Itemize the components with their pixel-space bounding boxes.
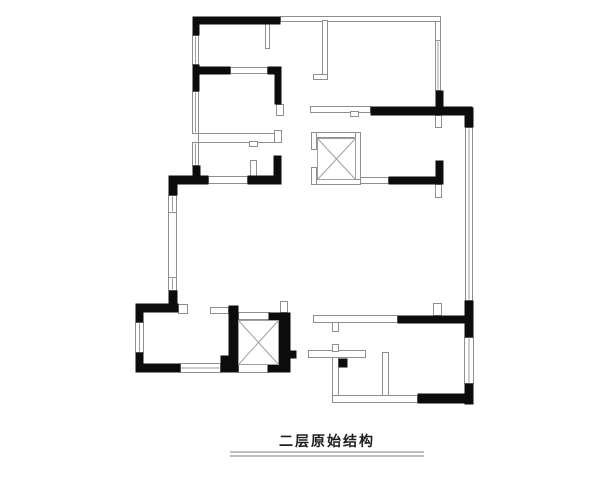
- wall-bearing: [136, 304, 144, 323]
- wall-thin: [312, 133, 361, 138]
- wall-thin: [275, 131, 282, 143]
- door-jamb: [281, 302, 288, 313]
- door-jamb: [179, 305, 188, 314]
- wall-bearing: [371, 107, 473, 116]
- door-pivot: [291, 351, 297, 359]
- wall-thin: [209, 177, 248, 184]
- wall-thin: [361, 178, 389, 184]
- wall-bearing: [398, 316, 469, 324]
- wall-thin: [314, 316, 398, 323]
- wall-thin: [312, 180, 361, 185]
- wall-thin: [231, 68, 268, 74]
- wall-thin: [314, 75, 328, 80]
- wall-thin: [333, 345, 339, 352]
- door-jamb: [436, 185, 442, 198]
- wall-bearing: [269, 313, 279, 321]
- door-jamb: [277, 105, 284, 116]
- wall-bearing: [193, 67, 231, 75]
- wall-thin: [250, 142, 258, 147]
- wall-bearing: [275, 67, 282, 105]
- wall-bearing: [465, 108, 474, 128]
- wall-thin: [239, 313, 270, 320]
- door-pivot: [221, 356, 229, 364]
- wall-thin: [333, 396, 418, 403]
- wall-bearing: [193, 17, 281, 25]
- wall-thin: [351, 112, 359, 117]
- wall-thin: [311, 107, 371, 113]
- door-jamb: [436, 116, 442, 128]
- wall-bearing: [436, 91, 444, 107]
- wall-bearing: [136, 364, 181, 373]
- floor-plan-drawing: [0, 0, 600, 480]
- wall-thin: [312, 168, 317, 185]
- wall-bearing: [418, 394, 474, 404]
- wall-bearing: [389, 177, 443, 185]
- floor-plan-page: 二层原始结构: [0, 0, 600, 480]
- wall-bearing: [169, 176, 178, 196]
- door-jamb: [211, 308, 229, 314]
- wall-thin: [199, 134, 276, 143]
- wall-bearing: [229, 306, 239, 373]
- door-pivot: [339, 359, 348, 368]
- wall-thin: [323, 21, 328, 79]
- wall-thin: [281, 17, 441, 22]
- wall-bearing: [274, 156, 282, 185]
- wall-thin: [356, 133, 361, 185]
- wall-thin: [239, 365, 269, 373]
- wall-bearing: [436, 161, 444, 185]
- plan-title: 二层原始结构: [227, 431, 427, 451]
- wall-thin: [436, 22, 441, 41]
- door-jamb: [434, 304, 442, 316]
- wall-thin: [251, 161, 257, 177]
- wall-bearing: [193, 17, 200, 36]
- wall-thin: [169, 213, 177, 278]
- wall-thin: [333, 323, 339, 332]
- wall-thin: [266, 24, 270, 49]
- wall-thin: [312, 133, 317, 150]
